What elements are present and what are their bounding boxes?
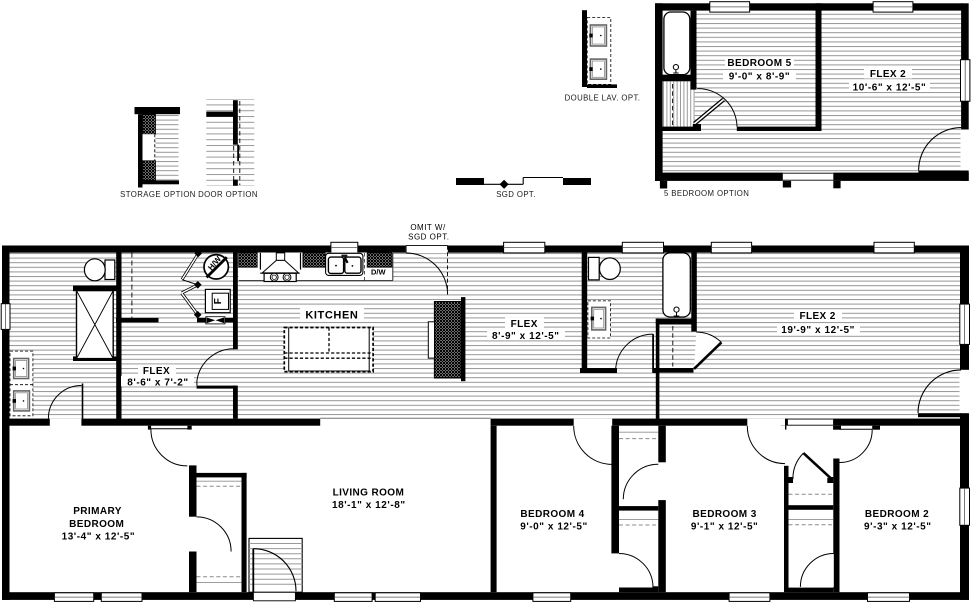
svg-text:13'-4" x 12'-5": 13'-4" x 12'-5": [62, 532, 136, 543]
svg-text:FLEX: FLEX: [143, 366, 170, 377]
svg-text:BEDROOM 2: BEDROOM 2: [865, 509, 929, 520]
svg-text:FLEX 2: FLEX 2: [870, 69, 906, 80]
svg-text:9'-0" x 8'-9": 9'-0" x 8'-9": [729, 72, 790, 83]
svg-text:BEDROOM 4: BEDROOM 4: [520, 509, 584, 520]
svg-text:8'-6" x 7'-2": 8'-6" x 7'-2": [127, 378, 188, 389]
svg-text:8'-9" x 12'-5": 8'-9" x 12'-5": [492, 331, 560, 342]
svg-text:18'-1" x 12'-8": 18'-1" x 12'-8": [332, 500, 406, 511]
svg-text:FLEX 2: FLEX 2: [799, 311, 835, 322]
svg-text:DOOR OPTION: DOOR OPTION: [198, 190, 258, 199]
svg-text:BEDROOM 3: BEDROOM 3: [693, 509, 757, 520]
svg-text:5 BEDROOM OPTION: 5 BEDROOM OPTION: [664, 189, 749, 198]
svg-text:10'-6" x 12'-5": 10'-6" x 12'-5": [853, 83, 927, 94]
svg-text:9'-0" x 12'-5": 9'-0" x 12'-5": [520, 521, 588, 532]
svg-text:LIVING ROOM: LIVING ROOM: [333, 487, 405, 498]
svg-text:SGD OPT.: SGD OPT.: [408, 233, 449, 242]
svg-text:BEDROOM: BEDROOM: [69, 519, 124, 530]
svg-text:9'-1" x 12'-5": 9'-1" x 12'-5": [691, 521, 759, 532]
svg-text:OMIT W/: OMIT W/: [410, 223, 446, 232]
svg-text:PRIMARY: PRIMARY: [73, 506, 122, 517]
svg-text:FLEX: FLEX: [511, 319, 538, 330]
svg-text:DOUBLE LAV. OPT.: DOUBLE LAV. OPT.: [565, 94, 641, 103]
svg-text:D/W: D/W: [371, 268, 387, 277]
svg-text:19'-9" x 12'-5": 19'-9" x 12'-5": [781, 325, 855, 336]
svg-text:BEDROOM 5: BEDROOM 5: [727, 58, 791, 69]
svg-text:9'-3" x 12'-5": 9'-3" x 12'-5": [864, 521, 932, 532]
svg-text:KITCHEN: KITCHEN: [305, 310, 358, 322]
svg-text:F: F: [213, 298, 224, 304]
svg-text:STORAGE OPTION: STORAGE OPTION: [120, 190, 196, 199]
svg-text:SGD OPT.: SGD OPT.: [496, 190, 536, 199]
